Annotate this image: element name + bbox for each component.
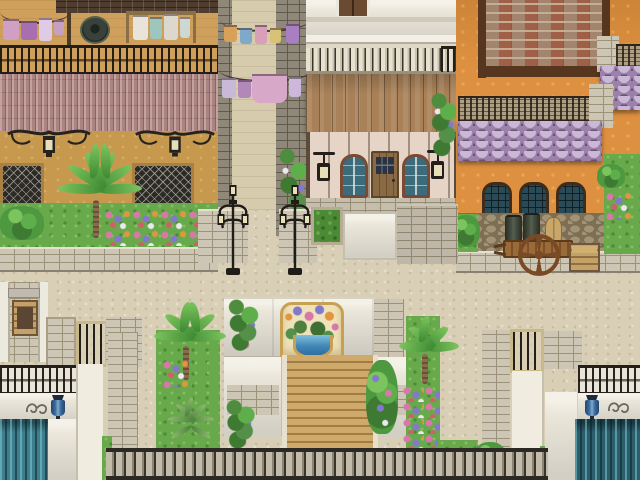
laundry-white-sheet (133, 15, 148, 40)
right-corner-bush (597, 164, 625, 188)
canal-east-iron-railing (578, 365, 640, 395)
laundry-purple-towel (21, 21, 37, 40)
laundry-tan-cloth (224, 25, 237, 42)
laundry-blue-cloth (240, 28, 252, 44)
wing-west-flower-patch (224, 400, 258, 450)
laundry-pink-blanket (252, 74, 287, 103)
monument-vine-west (225, 299, 263, 353)
quay-blue-lamp-west (51, 395, 67, 422)
wing-east-flower-bush (366, 360, 398, 434)
canal-west-wall-edge (48, 419, 76, 480)
street-white-niche (343, 212, 397, 260)
street-wall-east (397, 204, 458, 264)
laundry-pink-cloth (255, 25, 267, 44)
quay-blue-lamp-east (585, 395, 600, 422)
laundry-lavender-towel (39, 18, 52, 41)
right-parapet-railing-lower (458, 96, 592, 122)
right-trim-bottom (478, 66, 610, 77)
cart-wheel (518, 234, 560, 276)
well-cap-slab (8, 288, 40, 298)
left-curb-wall (0, 247, 218, 272)
canal-east-wall-vertical (482, 330, 510, 454)
right-brick-panel (486, 0, 602, 66)
canal-east-wall-corner (544, 331, 582, 369)
wall-lantern-west (313, 152, 335, 194)
clothesline-pole (67, 12, 71, 46)
plaza-palm-east (402, 310, 448, 394)
laundry-teal-towel (150, 17, 162, 39)
center-arched-window-west (340, 154, 368, 198)
right-verge-flowers (605, 192, 633, 220)
left-palm-bush (46, 138, 146, 242)
canal-west-gate[interactable] (76, 321, 108, 367)
center-climbing-ivy (431, 90, 458, 162)
plaza-flowers-west (162, 360, 192, 388)
right-parapet-railing-upper (616, 44, 640, 68)
street-hedge-planter (311, 207, 343, 245)
left-dark-bush (0, 206, 44, 240)
plaza-agave (164, 396, 216, 446)
right-window-2 (519, 182, 549, 217)
door-window (376, 157, 394, 174)
center-ledge-shadow (306, 17, 458, 22)
plaza-flowers-east (402, 386, 440, 452)
wooden-crate (569, 243, 600, 272)
shrine-inner (17, 307, 33, 329)
street-lamp-west (213, 180, 253, 278)
laundry-small-cloth (54, 20, 64, 35)
street-lamp-east (275, 180, 315, 278)
laundry-yellow-cloth (270, 28, 281, 43)
game-viewport[interactable] (0, 0, 640, 480)
door-knob (392, 179, 395, 182)
laundry-violet-cloth (286, 24, 299, 43)
center-upper-door[interactable] (336, 0, 370, 16)
plaza-baluster-railing (106, 448, 548, 480)
canal-west-wall-vertical (108, 332, 138, 452)
laundry-lavender-cloth (289, 77, 301, 97)
left-building-parapet-railing (0, 45, 218, 75)
center-front-door[interactable] (371, 151, 399, 198)
laundry-gray-towel (180, 17, 190, 38)
right-window-1 (482, 182, 512, 217)
laundry-lilac-cloth (222, 78, 236, 98)
center-ledge (306, 35, 458, 44)
well-shrine-cabinet (12, 300, 38, 336)
center-balcony-balustrade (306, 44, 458, 74)
center-arched-window-east (402, 154, 430, 198)
water-barrel (80, 16, 110, 44)
plaza-wooden-steps[interactable] (282, 355, 378, 459)
canal-west-gate-pillar (46, 317, 76, 367)
monument-pillar-east (374, 299, 404, 359)
crate-lid (572, 246, 597, 253)
canal-water-west (0, 419, 48, 480)
quay-scroll-ornament-west (24, 399, 50, 417)
canal-west-iron-railing (0, 365, 76, 395)
right-window-3 (556, 182, 586, 217)
canal-west-quay-pillar (76, 364, 103, 480)
canal-east-quay-pillar (512, 371, 544, 454)
laundry-white-towel (164, 14, 178, 40)
laundry-plum-cloth (238, 80, 251, 98)
canal-east-gate[interactable] (510, 329, 544, 373)
quay-scroll-ornament-east (606, 398, 632, 416)
drying-rack-leg-left (126, 11, 129, 43)
laundry-pink-towel (3, 19, 19, 40)
palm-trunk (93, 200, 99, 238)
drying-rack-leg-right (193, 11, 196, 43)
left-window-west (0, 163, 44, 207)
canal-water-east (575, 419, 640, 480)
canal-east-wall-edge (545, 392, 577, 480)
right-scale-roof-lower (458, 121, 602, 161)
